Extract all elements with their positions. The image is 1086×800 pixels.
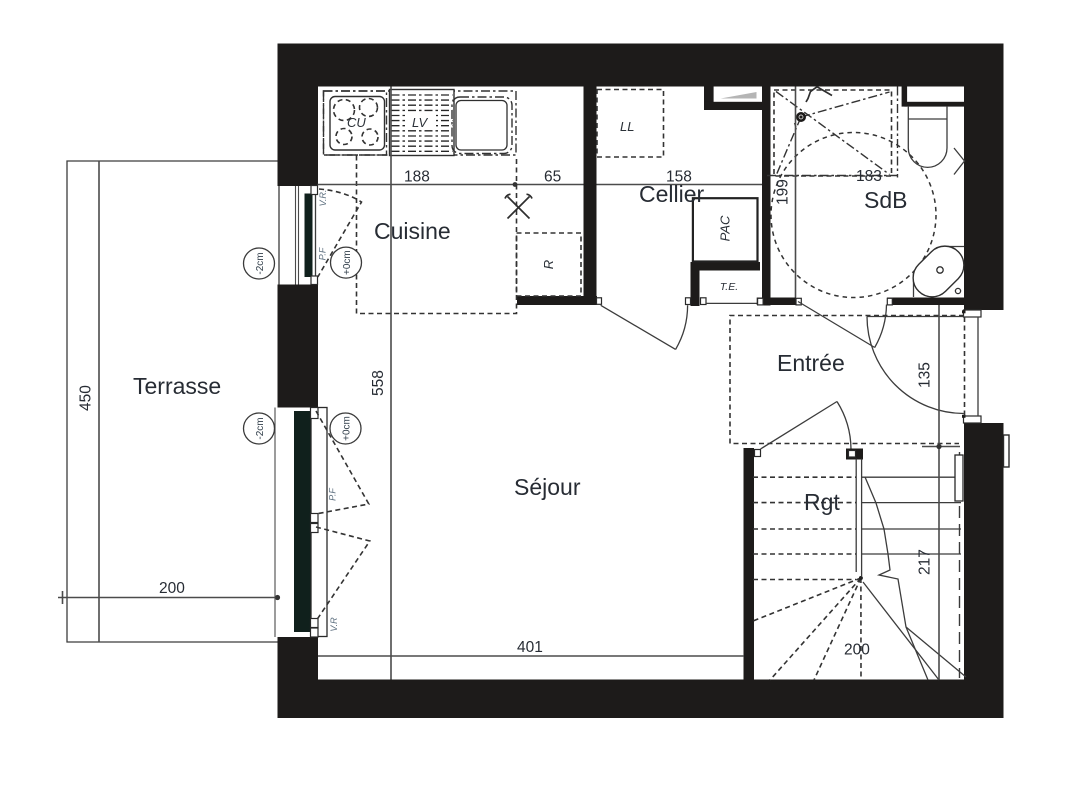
svg-text:217: 217 bbox=[917, 549, 934, 575]
svg-text:LL: LL bbox=[620, 119, 634, 134]
svg-text:183: 183 bbox=[856, 168, 882, 185]
svg-text:-2cm: -2cm bbox=[255, 252, 266, 274]
svg-text:T.E.: T.E. bbox=[720, 281, 738, 293]
svg-text:V.R.: V.R. bbox=[318, 190, 328, 207]
svg-text:135: 135 bbox=[917, 362, 934, 388]
svg-text:401: 401 bbox=[517, 639, 543, 656]
svg-text:Cuisine: Cuisine bbox=[374, 218, 451, 244]
svg-text:199: 199 bbox=[775, 179, 792, 205]
svg-text:Terrasse: Terrasse bbox=[133, 373, 221, 399]
svg-text:P.F: P.F bbox=[328, 488, 338, 501]
svg-text:+0cm: +0cm bbox=[342, 250, 353, 275]
svg-text:R: R bbox=[541, 260, 556, 269]
svg-text:Rgt: Rgt bbox=[804, 489, 840, 515]
svg-text:SdB: SdB bbox=[864, 187, 907, 213]
svg-text:Cellier: Cellier bbox=[639, 181, 705, 207]
svg-text:PAC: PAC bbox=[718, 215, 733, 241]
svg-text:Séjour: Séjour bbox=[514, 474, 581, 500]
svg-text:200: 200 bbox=[159, 580, 185, 597]
svg-text:P.F: P.F bbox=[318, 247, 328, 260]
svg-text:200: 200 bbox=[844, 642, 870, 659]
svg-text:V.R: V.R bbox=[329, 617, 339, 632]
svg-text:Entrée: Entrée bbox=[777, 350, 845, 376]
svg-text:65: 65 bbox=[544, 169, 561, 186]
svg-text:558: 558 bbox=[370, 370, 387, 396]
svg-text:450: 450 bbox=[78, 385, 95, 411]
svg-text:CU: CU bbox=[347, 115, 366, 130]
svg-text:188: 188 bbox=[404, 169, 430, 186]
svg-text:-2cm: -2cm bbox=[255, 417, 266, 439]
svg-text:LV: LV bbox=[412, 115, 429, 130]
svg-text:+0cm: +0cm bbox=[342, 416, 353, 441]
